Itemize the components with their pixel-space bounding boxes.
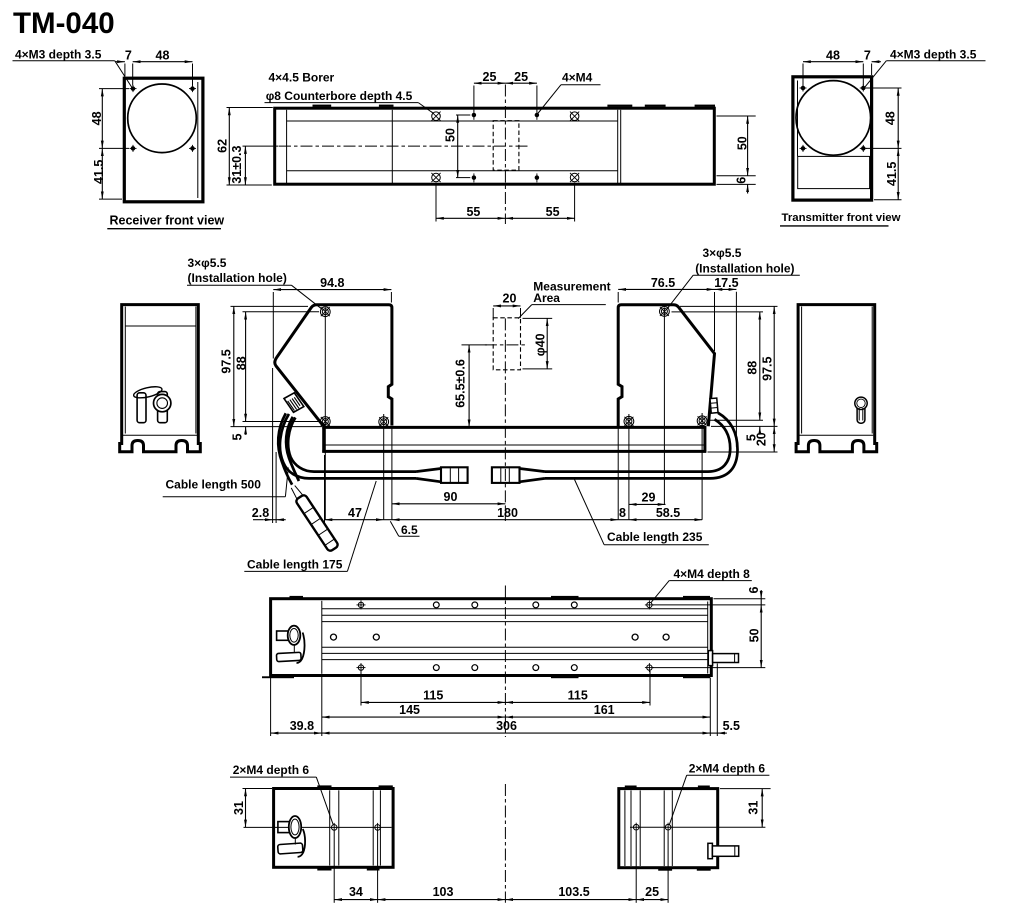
svg-text:161: 161: [594, 703, 615, 717]
svg-text:25: 25: [483, 70, 497, 84]
svg-text:20: 20: [754, 432, 768, 446]
svg-text:41.5: 41.5: [92, 160, 106, 184]
svg-text:115: 115: [568, 688, 588, 702]
svg-text:50: 50: [735, 136, 749, 150]
svg-text:6: 6: [735, 177, 749, 184]
svg-text:φ40: φ40: [533, 333, 547, 356]
svg-text:4×M3 depth 3.5: 4×M3 depth 3.5: [890, 47, 977, 61]
svg-text:2×M4 depth 6: 2×M4 depth 6: [689, 761, 766, 775]
svg-text:5.5: 5.5: [723, 719, 740, 733]
svg-text:50: 50: [747, 628, 761, 642]
svg-text:6: 6: [747, 586, 761, 593]
svg-text:Cable length 500: Cable length 500: [166, 478, 262, 492]
svg-text:34: 34: [349, 885, 363, 899]
svg-text:39.8: 39.8: [290, 719, 314, 733]
svg-text:3×φ5.5: 3×φ5.5: [188, 256, 227, 270]
svg-text:2×M4 depth 6: 2×M4 depth 6: [233, 763, 310, 777]
svg-text:65.5±0.6: 65.5±0.6: [453, 359, 467, 408]
svg-text:25: 25: [514, 70, 528, 84]
svg-text:3×φ5.5: 3×φ5.5: [703, 246, 742, 260]
svg-text:4×M4 depth 8: 4×M4 depth 8: [674, 567, 751, 581]
svg-text:55: 55: [546, 205, 560, 219]
svg-text:Receiver front view: Receiver front view: [110, 214, 225, 228]
svg-text:76.5: 76.5: [651, 276, 675, 290]
svg-text:5: 5: [230, 433, 244, 440]
svg-text:88: 88: [235, 356, 249, 370]
svg-text:31: 31: [232, 801, 246, 815]
svg-text:(Installation hole): (Installation hole): [695, 262, 794, 276]
svg-text:103.5: 103.5: [558, 885, 589, 899]
svg-text:103: 103: [433, 885, 454, 899]
svg-text:58.5: 58.5: [656, 506, 680, 520]
svg-text:50: 50: [444, 128, 458, 142]
svg-text:Area: Area: [533, 291, 560, 305]
svg-text:47: 47: [348, 506, 362, 520]
svg-text:145: 145: [399, 703, 420, 717]
svg-text:TM-040: TM-040: [13, 7, 115, 40]
svg-text:306: 306: [496, 719, 517, 733]
svg-text:41.5: 41.5: [885, 162, 899, 186]
svg-text:62: 62: [215, 139, 229, 153]
svg-text:31: 31: [746, 801, 760, 815]
svg-text:6.5: 6.5: [401, 523, 418, 537]
svg-text:94.8: 94.8: [320, 276, 344, 290]
svg-text:48: 48: [156, 49, 170, 63]
svg-text:20: 20: [503, 292, 517, 306]
svg-text:48: 48: [826, 49, 840, 63]
svg-text:8: 8: [619, 506, 626, 520]
svg-text:97.5: 97.5: [220, 349, 234, 373]
svg-text:Cable length 175: Cable length 175: [247, 557, 343, 571]
svg-text:180: 180: [497, 506, 518, 520]
svg-text:φ8 Counterbore depth 4.5: φ8 Counterbore depth 4.5: [266, 89, 413, 103]
svg-text:(Installation hole): (Installation hole): [188, 271, 287, 285]
svg-text:17.5: 17.5: [714, 276, 738, 290]
svg-text:29: 29: [642, 490, 656, 504]
svg-text:25: 25: [645, 885, 659, 899]
svg-text:31±0.3: 31±0.3: [230, 145, 244, 183]
svg-text:2.8: 2.8: [252, 506, 269, 520]
svg-text:4×4.5 Borer: 4×4.5 Borer: [269, 70, 335, 84]
svg-text:55: 55: [466, 205, 480, 219]
svg-text:4×M4: 4×M4: [562, 71, 593, 85]
svg-text:48: 48: [90, 111, 104, 125]
svg-text:115: 115: [423, 688, 443, 702]
svg-text:7: 7: [864, 49, 871, 63]
svg-text:97.5: 97.5: [761, 356, 775, 380]
svg-text:90: 90: [444, 490, 458, 504]
svg-text:7: 7: [125, 49, 132, 63]
svg-text:48: 48: [883, 111, 897, 125]
svg-text:Transmitter front view: Transmitter front view: [782, 212, 901, 224]
svg-text:Cable length 235: Cable length 235: [607, 530, 703, 544]
svg-text:4×M3 depth 3.5: 4×M3 depth 3.5: [15, 47, 102, 61]
svg-text:88: 88: [746, 361, 760, 375]
